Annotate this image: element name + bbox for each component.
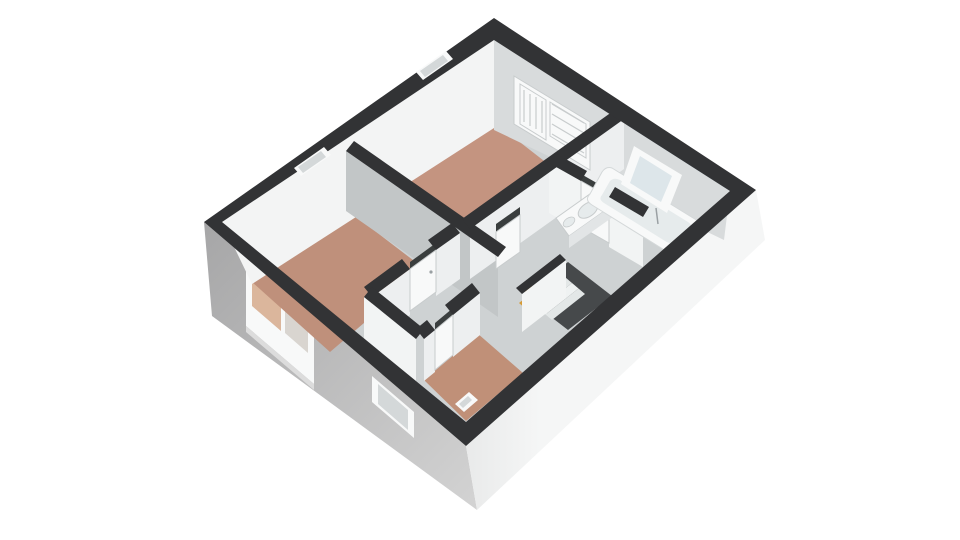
floorplan-3d-render [0,0,960,540]
door-handle [429,270,432,273]
floorplan-stage [0,0,960,540]
